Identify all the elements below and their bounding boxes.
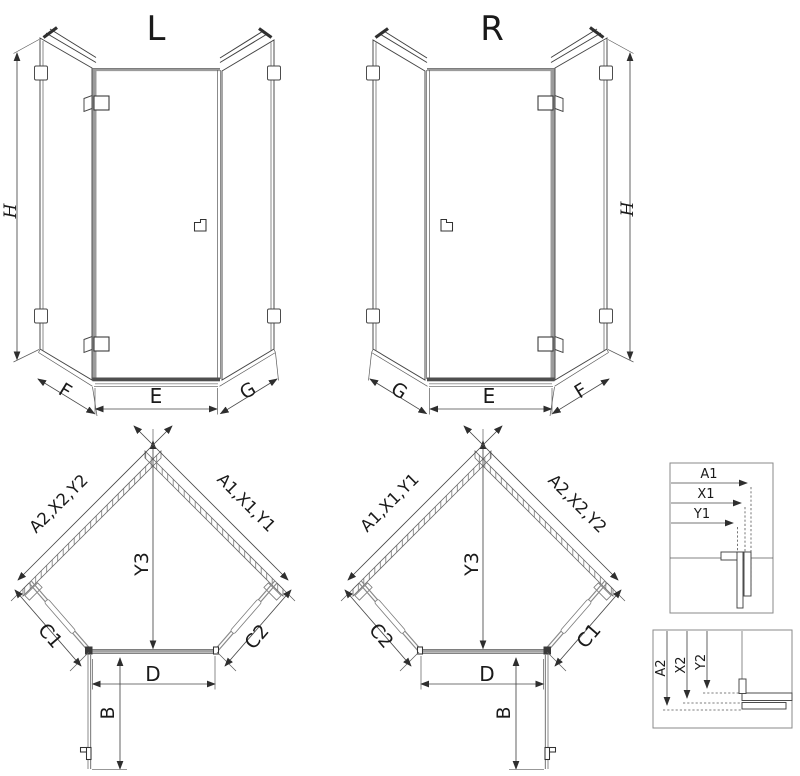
detail-box-frame <box>653 630 792 728</box>
dim-label-wall-upper-left: A2,X2,Y2 <box>26 471 92 537</box>
dim-label-door-width: D <box>479 662 494 686</box>
shower-enclosure-technical-diagram: L H F E G R H G E F A2,X2,Y2 A1,X1,Y1 Y3… <box>0 0 800 776</box>
variant-title-left: L <box>147 9 166 49</box>
dim-label-door-swing: B <box>493 706 515 719</box>
dim-label-right-panel: F <box>571 379 592 403</box>
variant-title-right: R <box>480 9 504 49</box>
dim-label-left-panel: G <box>387 378 411 404</box>
profile-section <box>742 703 786 710</box>
dim-label-door-width: D <box>145 662 160 686</box>
dim-label-wall-upper-right: A2,X2,Y2 <box>544 471 610 537</box>
detail-label-x2: X2 <box>674 656 689 673</box>
dim-label-door-swing: B <box>97 706 119 719</box>
dim-label-side-right: C2 <box>240 620 273 654</box>
dim-label-wall-upper-left: A1,X1,Y1 <box>357 470 423 536</box>
detail-label-a1: A1 <box>700 467 717 482</box>
glass-section <box>737 552 743 608</box>
dim-label-height: H <box>1 202 21 219</box>
dim-label-door: E <box>150 384 163 408</box>
dim-label-apex-depth: Y3 <box>131 552 153 577</box>
dim-label-apex-depth: Y3 <box>461 552 483 577</box>
detail-label-x1: X1 <box>697 487 714 502</box>
dim-label-wall-upper-right: A1,X1,Y1 <box>213 470 279 536</box>
profile-section <box>744 552 751 596</box>
plan-left-labels: A2,X2,Y2 A1,X1,Y1 Y3 C1 C2 D B <box>26 470 280 720</box>
profile-section <box>739 679 746 694</box>
detail-label-a2: A2 <box>654 659 669 676</box>
profile-section <box>742 693 792 701</box>
detail-label-y2: Y2 <box>694 654 709 671</box>
dim-label-right-panel: G <box>236 378 260 404</box>
elevation-right-drawing <box>367 28 634 417</box>
dim-label-door: E <box>483 384 496 408</box>
dim-label-side-left: C2 <box>364 619 397 653</box>
dim-label-side-left: C1 <box>33 619 66 653</box>
detail-box-frame <box>670 463 773 613</box>
plan-left-drawing <box>11 426 295 769</box>
elevation-left-drawing <box>14 28 281 417</box>
detail-label-y1: Y1 <box>693 507 710 522</box>
plan-right-labels: A1,X1,Y1 A2,X2,Y2 Y3 C2 C1 D B <box>357 470 611 720</box>
dim-label-side-right: C1 <box>572 619 605 653</box>
plan-right-drawing <box>341 426 625 769</box>
detail-box-a2x2y2: A2 X2 Y2 <box>653 630 792 728</box>
dim-label-height: H <box>618 200 638 217</box>
detail-box-a1x1y1: A1 X1 Y1 <box>670 463 773 613</box>
